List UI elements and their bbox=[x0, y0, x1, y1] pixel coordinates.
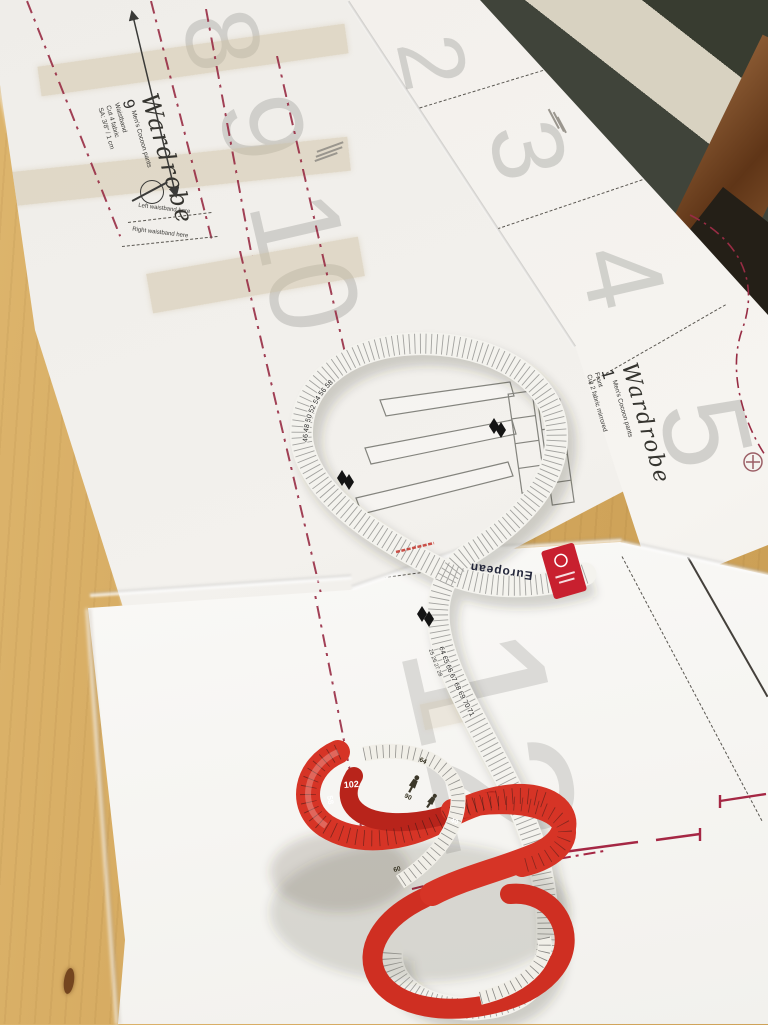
printed-edge-line bbox=[687, 556, 768, 697]
piece-number-12: 12 bbox=[368, 609, 613, 871]
label-piece-number: 9 bbox=[119, 98, 135, 111]
photo-canvas: { "sheets": { "a": { "brand": "Wardrobe"… bbox=[0, 0, 768, 1024]
piece-number-4: 4 bbox=[560, 233, 683, 319]
label-piece-number: 1 bbox=[599, 367, 616, 380]
piece-number-3: 3 bbox=[472, 111, 584, 189]
cut-line-red bbox=[305, 549, 366, 850]
fold-line-dashed bbox=[622, 556, 763, 821]
